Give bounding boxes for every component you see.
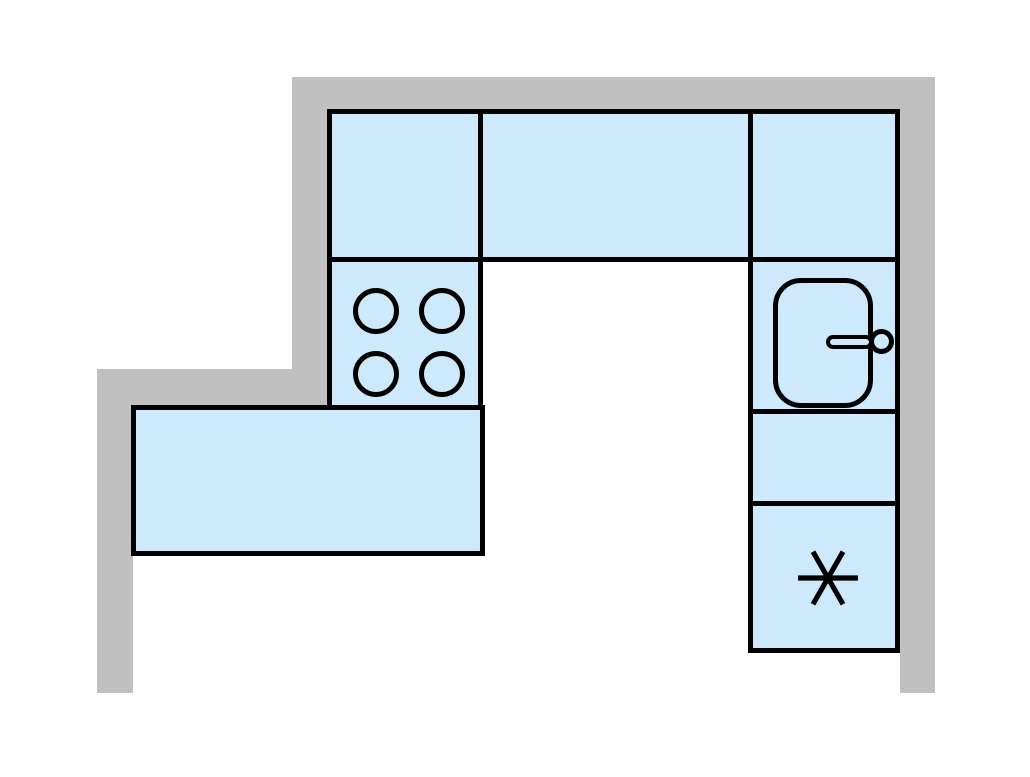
snowflake-icon: [795, 548, 861, 608]
burner-icon: [419, 351, 465, 397]
burner-icon: [353, 351, 399, 397]
top-right-cabinet: [748, 109, 900, 262]
freezer-cabinet: [748, 501, 900, 653]
burner-icon: [353, 288, 399, 334]
kitchen-floor-plan: [0, 0, 1030, 777]
wall-right: [900, 77, 935, 693]
faucet-knob-icon: [869, 329, 894, 354]
burner-icon: [419, 288, 465, 334]
wall-left-lower: [97, 369, 133, 693]
top-middle-cabinet: [478, 109, 753, 262]
faucet-icon: [826, 335, 873, 349]
top-left-cabinet: [327, 109, 483, 262]
wall-top: [292, 77, 935, 110]
wall-left-upper: [292, 77, 329, 407]
left-counter: [131, 405, 485, 556]
right-middle-cabinet: [748, 409, 900, 506]
sink-cabinet: [748, 257, 900, 414]
cooktop-cabinet: [327, 257, 483, 410]
